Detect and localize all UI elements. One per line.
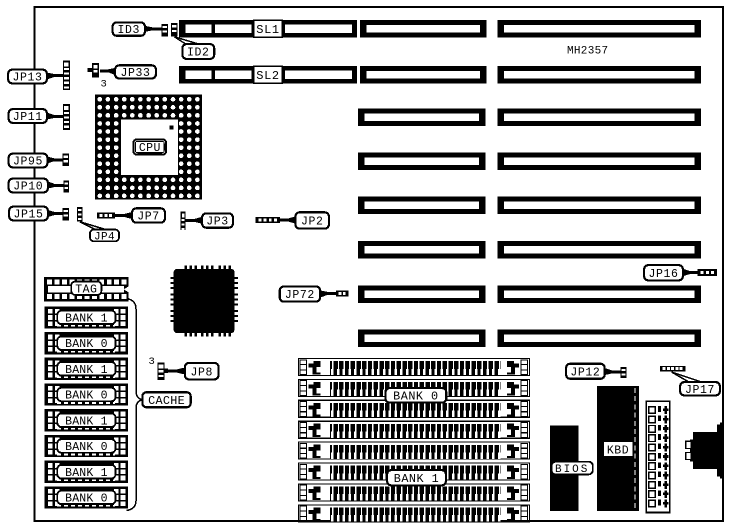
svg-text:BANK 0: BANK 0 bbox=[393, 390, 438, 404]
svg-text:JP11: JP11 bbox=[13, 111, 43, 124]
svg-text:MH2357: MH2357 bbox=[567, 46, 608, 58]
svg-text:JP15: JP15 bbox=[13, 209, 43, 222]
svg-text:3: 3 bbox=[101, 79, 107, 91]
svg-text:BANK 1: BANK 1 bbox=[65, 364, 108, 377]
svg-text:ID2: ID2 bbox=[187, 47, 210, 60]
svg-text:CACHE: CACHE bbox=[148, 394, 185, 408]
svg-text:JP13: JP13 bbox=[12, 72, 42, 85]
svg-text:CPU: CPU bbox=[139, 142, 161, 155]
svg-text:ID3: ID3 bbox=[118, 24, 141, 37]
svg-text:BIOS: BIOS bbox=[555, 464, 589, 476]
svg-text:JP12: JP12 bbox=[570, 366, 600, 379]
svg-text:BANK 1: BANK 1 bbox=[65, 313, 108, 326]
svg-text:JP8: JP8 bbox=[190, 366, 213, 379]
svg-text:JP72: JP72 bbox=[285, 289, 315, 302]
svg-text:JP7: JP7 bbox=[137, 211, 160, 224]
svg-text:JP10: JP10 bbox=[13, 181, 43, 194]
svg-text:BANK 1: BANK 1 bbox=[65, 467, 108, 480]
svg-text:TAG: TAG bbox=[75, 283, 97, 296]
svg-text:JP95: JP95 bbox=[13, 156, 43, 169]
svg-text:JP17: JP17 bbox=[685, 384, 715, 397]
svg-text:JP2: JP2 bbox=[301, 216, 324, 229]
svg-text:3: 3 bbox=[149, 356, 155, 368]
svg-text:JP33: JP33 bbox=[120, 67, 150, 80]
svg-text:BANK 1: BANK 1 bbox=[394, 472, 439, 486]
svg-text:BANK 0: BANK 0 bbox=[65, 441, 108, 454]
svg-text:JP4: JP4 bbox=[94, 231, 115, 243]
svg-text:SL2: SL2 bbox=[256, 69, 279, 83]
svg-text:BANK 0: BANK 0 bbox=[65, 493, 108, 506]
svg-text:JP16: JP16 bbox=[648, 268, 678, 281]
svg-text:BANK 0: BANK 0 bbox=[65, 390, 108, 403]
svg-text:KBD: KBD bbox=[607, 445, 629, 458]
svg-text:BANK 1: BANK 1 bbox=[65, 415, 108, 428]
svg-text:SL1: SL1 bbox=[256, 23, 279, 37]
svg-text:JP3: JP3 bbox=[206, 216, 229, 229]
svg-text:BANK 0: BANK 0 bbox=[65, 338, 108, 351]
